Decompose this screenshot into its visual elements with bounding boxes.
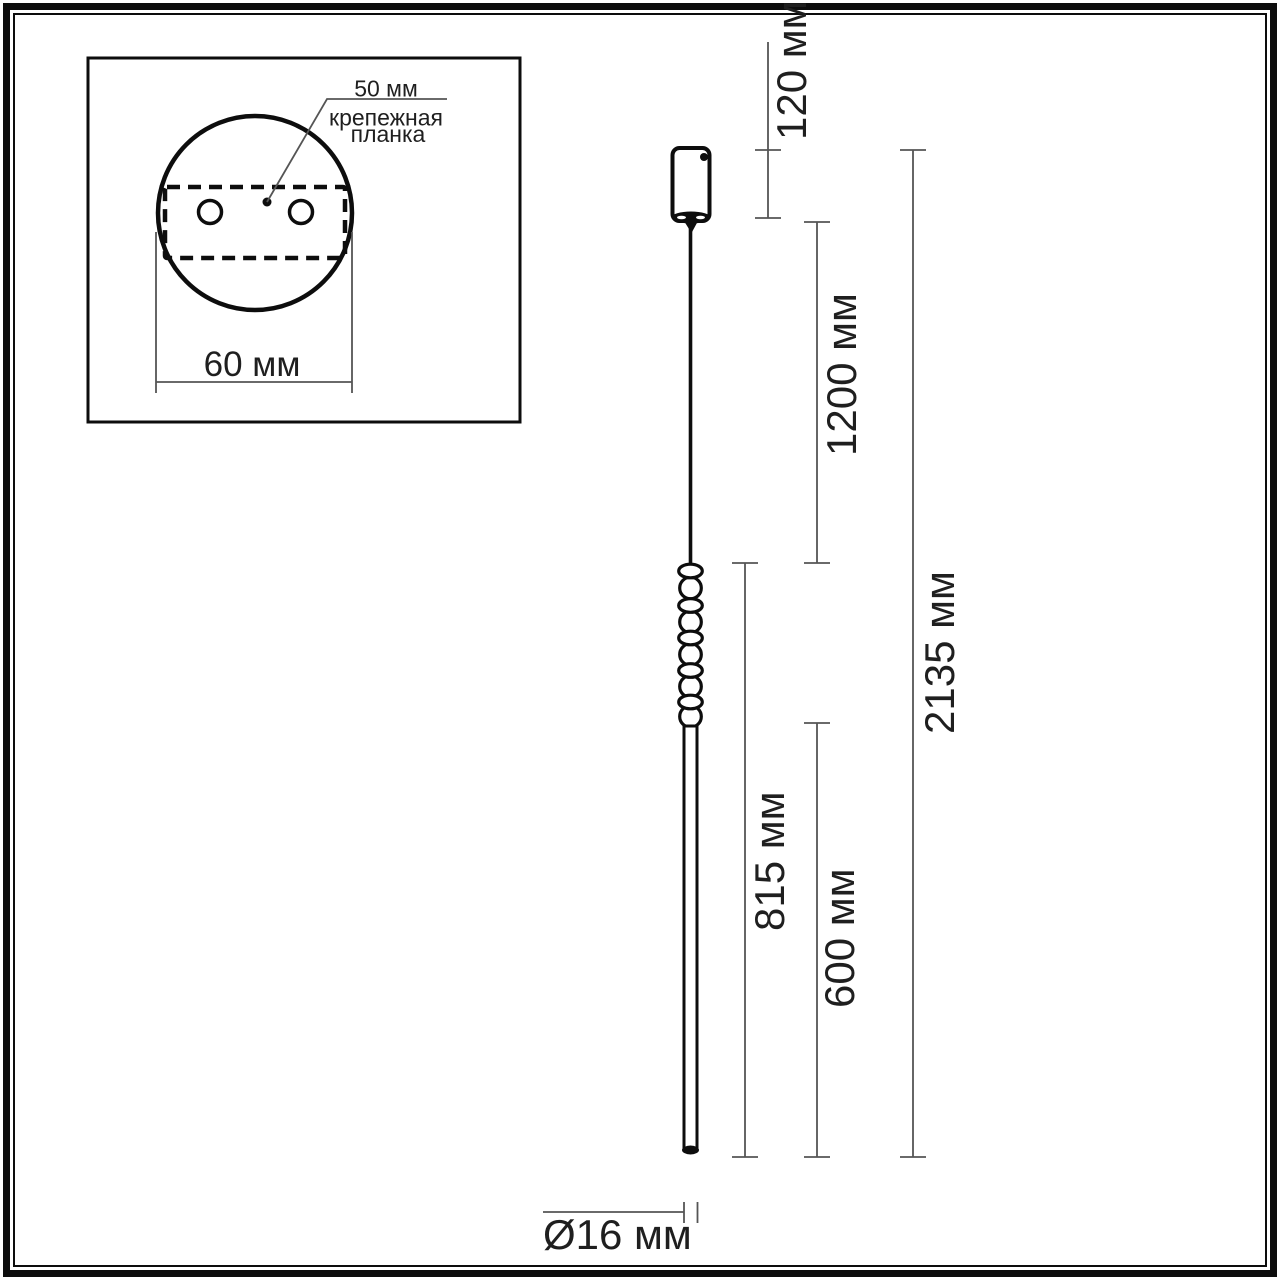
- suspension-length-label: 1200 мм: [818, 293, 865, 456]
- bead-disc: [679, 631, 703, 645]
- screw-hole-right: [290, 201, 313, 224]
- canopy-rim-highlight-left: [677, 216, 686, 219]
- inset-panel-border: [88, 58, 520, 422]
- dimension-canopy-height: 120 мм: [755, 1, 815, 219]
- pendant-lamp: [672, 148, 711, 1155]
- bead-disc: [679, 695, 703, 709]
- total-length-label: 2135 мм: [916, 571, 963, 734]
- base-diameter-label: 60 мм: [204, 345, 301, 384]
- dimension-suspension-length: 1200 мм: [804, 222, 865, 563]
- bead-section: [679, 564, 703, 727]
- plate-name-line2: планка: [351, 121, 426, 147]
- fixture-length-label: 815 мм: [746, 792, 793, 932]
- bead-disc: [679, 564, 703, 578]
- bead-disc: [679, 664, 703, 678]
- canopy-screw-dot: [700, 153, 708, 161]
- bead-sphere: [680, 611, 702, 633]
- screw-hole-left: [199, 201, 222, 224]
- tube-bottom-cap: [682, 1146, 699, 1155]
- tube-diameter-label: Ø16 мм: [543, 1211, 692, 1258]
- technical-drawing: 50 мм крепежная планка 60 мм: [0, 0, 1280, 1280]
- dimension-drawing-page: 50 мм крепежная планка 60 мм: [0, 0, 1280, 1280]
- dimension-tube-diameter: Ø16 мм: [543, 1202, 698, 1258]
- bead-sphere: [680, 644, 702, 666]
- dimensions: 120 мм 1200 мм 2135 мм 815 мм: [543, 1, 963, 1259]
- canopy-rim-highlight-right: [696, 216, 705, 219]
- dimension-total-length: 2135 мм: [900, 150, 963, 1157]
- mounting-plate-dashed-rect: [165, 187, 345, 258]
- light-tube: [684, 726, 697, 1150]
- bead-sphere: [680, 577, 702, 599]
- ceiling-cup-circle: [158, 116, 352, 310]
- plate-width-label: 50 мм: [354, 76, 418, 102]
- ceiling-base-inset: 50 мм крепежная планка 60 мм: [88, 58, 520, 422]
- canopy-height-label: 120 мм: [768, 1, 815, 141]
- bead-disc: [679, 599, 703, 613]
- dimension-fixture-length: 815 мм: [732, 563, 793, 1157]
- dimension-tube-length: 600 мм: [804, 723, 863, 1157]
- tube-length-label: 600 мм: [816, 869, 863, 1009]
